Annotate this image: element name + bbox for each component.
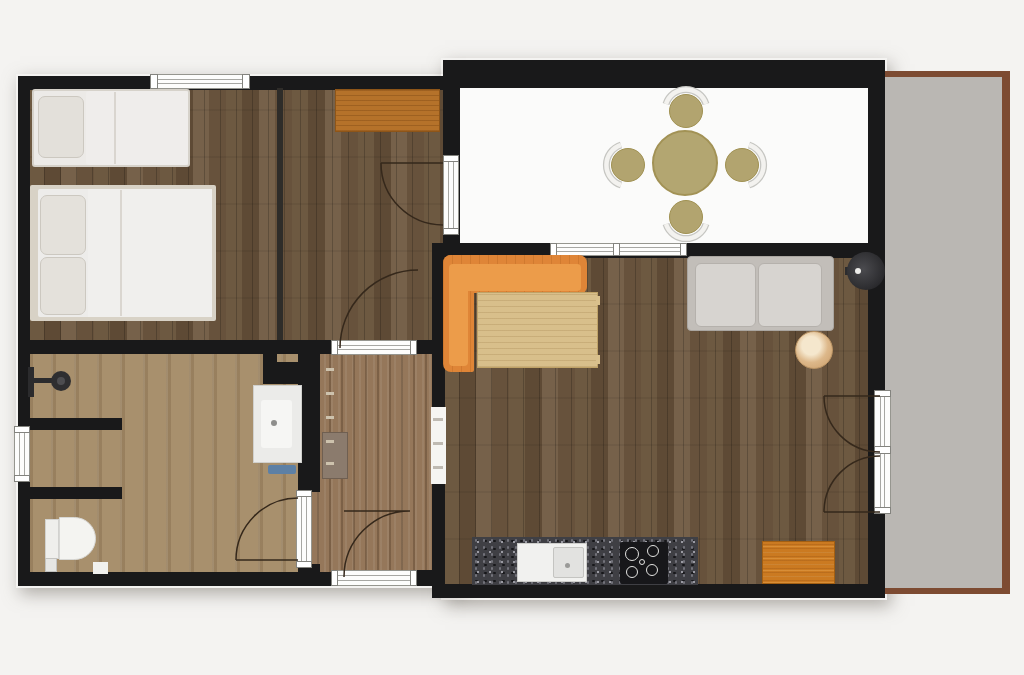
double-bed-pillow-top <box>40 195 86 255</box>
dining-stool-bottom <box>669 200 703 234</box>
dining-stool-right <box>725 148 759 182</box>
burner-2 <box>647 545 659 557</box>
window-bedroom <box>150 74 250 89</box>
burner-1 <box>625 547 639 561</box>
single-bed-duvet <box>86 91 188 165</box>
single-bed-duvet-fold <box>114 92 116 164</box>
terrace-floor <box>883 77 1002 588</box>
ladder-tick-1 <box>326 368 334 371</box>
ladder-tick-5 <box>326 462 334 465</box>
double-bed-pillow-bottom <box>40 257 86 315</box>
door-frame-terrace-cap-top <box>874 390 891 397</box>
door-frame-desk-patio-cap-bottom <box>443 228 459 235</box>
coffee-table-tab-bottom <box>596 355 600 364</box>
frame-entry-top-cap-right <box>410 340 417 355</box>
dining-stool-left <box>611 148 645 182</box>
dining-stool-top <box>669 94 703 128</box>
wall-bedroom-partition <box>277 88 283 340</box>
desk <box>335 89 440 132</box>
frame-entry-top <box>331 340 417 355</box>
side-table <box>795 331 833 369</box>
toilet-tank <box>45 519 59 559</box>
sofa-seat-cushion <box>451 264 581 291</box>
opening-dash-2 <box>433 442 443 445</box>
door-frame-terrace-cap-mid <box>874 446 891 454</box>
wall-bath-niche-v <box>263 352 277 384</box>
window-bedroom-cap-right <box>242 74 250 89</box>
coffee-table <box>477 292 598 368</box>
couch-cushion-right <box>758 263 822 327</box>
wall-patio-top <box>443 60 885 88</box>
vanity-faucet <box>271 420 277 426</box>
couch-cushion-left <box>695 263 756 327</box>
dining-table <box>652 130 718 196</box>
frame-entry-bottom <box>331 570 417 586</box>
coffee-table-tab-top <box>596 296 600 305</box>
door-frame-desk-patio-cap-top <box>443 155 459 162</box>
door-frame-desk-patio <box>443 155 459 235</box>
sofa-chaise-cushion <box>449 264 468 366</box>
hanging-lamp <box>847 252 885 290</box>
burner-3 <box>626 566 638 578</box>
shower-head-center <box>57 377 65 385</box>
burner-4 <box>646 564 658 576</box>
wall-bottom-left-block <box>18 572 334 586</box>
frame-entry-bottom-cap-left <box>331 570 338 586</box>
door-frame-bath <box>296 490 312 568</box>
frame-entry-bottom-cap-right <box>410 570 417 586</box>
double-bed-duvet-fold <box>120 190 122 316</box>
ladder-tick-2 <box>326 392 334 395</box>
bath-step <box>93 562 108 574</box>
window-bath-cap-bottom <box>14 475 30 482</box>
single-bed-pillow <box>38 96 84 158</box>
window-living-cap-mid <box>613 243 620 256</box>
wall-bath-b <box>18 487 122 499</box>
window-living-cap-right <box>680 243 687 256</box>
opening-dash-3 <box>433 466 443 469</box>
wall-bottom-right-block <box>432 584 885 598</box>
wall-bath-a <box>28 418 122 430</box>
vanity-mat <box>268 465 296 474</box>
window-bath <box>14 426 30 482</box>
floor-plan-canvas <box>0 0 1024 675</box>
double-bed-duvet <box>88 189 212 317</box>
window-bedroom-cap-left <box>150 74 158 89</box>
door-frame-bath-cap-top <box>296 490 312 497</box>
burner-center <box>639 559 645 565</box>
sink-faucet <box>565 563 570 568</box>
hanging-lamp-dot <box>855 268 861 274</box>
bath-scale <box>45 558 57 572</box>
kitchen-mat <box>762 541 835 584</box>
frame-entry-top-cap-left <box>331 340 338 355</box>
ladder-tick-3 <box>326 416 334 419</box>
opening-dash-1 <box>433 418 443 421</box>
door-frame-bath-cap-bottom <box>296 561 312 568</box>
window-bath-cap-top <box>14 426 30 433</box>
wall-left <box>18 76 30 586</box>
door-frame-terrace-cap-bottom <box>874 507 891 514</box>
ladder-tick-4 <box>326 440 334 443</box>
